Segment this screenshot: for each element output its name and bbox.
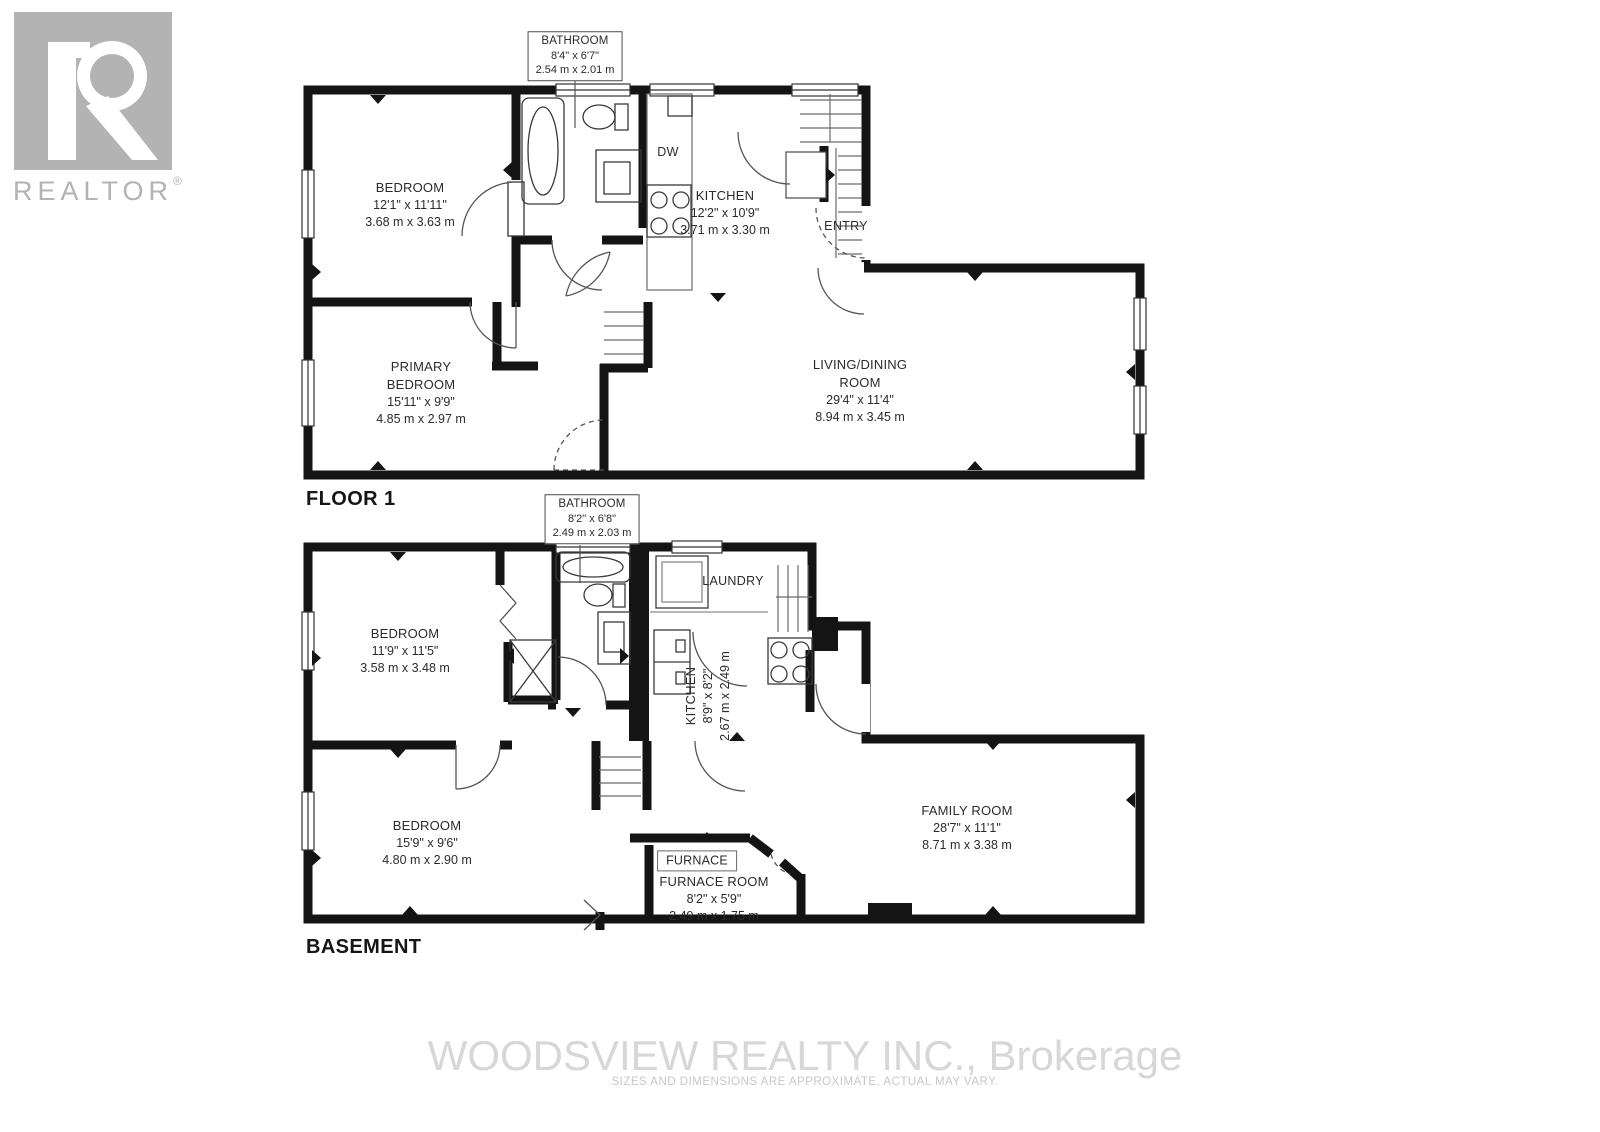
room-dim-metric: 3.68 m x 3.63 m bbox=[365, 214, 455, 231]
room-name: KITCHEN bbox=[680, 187, 770, 205]
room-dim-metric: 4.80 m x 2.90 m bbox=[382, 852, 472, 869]
stove-icon bbox=[768, 638, 812, 684]
room-dim-imperial: 15'9" x 9'6" bbox=[382, 835, 472, 852]
room-name: KITCHEN bbox=[682, 651, 700, 741]
room-dim-imperial: 15'11" x 9'9" bbox=[376, 394, 466, 411]
brokerage-watermark: WOODSVIEW REALTY INC., Brokerage bbox=[428, 1032, 1183, 1080]
room-name: FURNACE bbox=[666, 852, 728, 869]
floor1-bathroom-label: BATHROOM 8'4" x 6'7" 2.54 m x 2.01 m bbox=[528, 31, 623, 81]
basement-bedroom1-label: BEDROOM 11'9" x 11'5" 3.58 m x 3.48 m bbox=[360, 625, 450, 677]
room-dim-imperial: 29'4" x 11'4" bbox=[813, 392, 907, 409]
floor1-title: FLOOR 1 bbox=[306, 488, 395, 511]
room-name: ROOM bbox=[813, 374, 907, 392]
basement-bathroom-label: BATHROOM 8'2" x 6'8" 2.49 m x 2.03 m bbox=[545, 494, 640, 544]
room-dim-imperial: 28'7" x 11'1" bbox=[921, 820, 1012, 837]
basement-furnace-tag: FURNACE bbox=[657, 850, 737, 871]
room-dim-imperial: 12'1" x 11'11" bbox=[365, 197, 455, 214]
room-dim-imperial: 12'2" x 10'9" bbox=[680, 205, 770, 222]
room-name: BEDROOM bbox=[376, 376, 466, 394]
room-dim-metric: 2.67 m x 2.49 m bbox=[717, 651, 734, 741]
room-dim-imperial: 8'2" x 5'9" bbox=[659, 891, 768, 908]
room-dim-metric: 4.85 m x 2.97 m bbox=[376, 411, 466, 428]
disclaimer-text: SIZES AND DIMENSIONS ARE APPROXIMATE, AC… bbox=[611, 1076, 998, 1088]
floor1-primary-bedroom-label: PRIMARY BEDROOM 15'11" x 9'9" 4.85 m x 2… bbox=[376, 358, 466, 428]
floor1-entry-label: ENTRY bbox=[824, 219, 868, 233]
basement-family-room-label: FAMILY ROOM 28'7" x 11'1" 8.71 m x 3.38 … bbox=[921, 802, 1012, 854]
realtor-logo-icon bbox=[14, 12, 172, 170]
room-dim-imperial: 8'9" x 8'2" bbox=[700, 651, 717, 741]
room-name: LIVING/DINING bbox=[813, 356, 907, 374]
bifold-door-icon bbox=[500, 585, 516, 639]
floor1-bedroom-label: BEDROOM 12'1" x 11'11" 3.68 m x 3.63 m bbox=[365, 179, 455, 231]
room-name: BATHROOM bbox=[553, 497, 632, 512]
floor1-dishwasher-label: DW bbox=[657, 145, 678, 159]
room-dim-imperial: 8'2" x 6'8" bbox=[553, 512, 632, 526]
basement-furnace-room-label: FURNACE ROOM 8'2" x 5'9" 2.49 m x 1.75 m bbox=[659, 873, 768, 925]
room-name: PRIMARY bbox=[376, 358, 466, 376]
floorplan-page: REALTOR ® BATHROOM 8'4" x 6'7" 2.54 m x … bbox=[0, 0, 1600, 1132]
room-dim-metric: 2.54 m x 2.01 m bbox=[536, 63, 615, 77]
realtor-logo-wordmark: REALTOR ® bbox=[13, 176, 175, 207]
realtor-logo-text: REALTOR bbox=[13, 176, 173, 207]
room-name: BATHROOM bbox=[536, 34, 615, 49]
room-dim-metric: 3.71 m x 3.30 m bbox=[680, 222, 770, 239]
registered-mark: ® bbox=[173, 174, 182, 188]
floor1-kitchen-label: KITCHEN 12'2" x 10'9" 3.71 m x 3.30 m bbox=[680, 187, 770, 239]
room-dim-metric: 2.49 m x 1.75 m bbox=[659, 908, 768, 925]
room-name: FURNACE ROOM bbox=[659, 873, 768, 891]
basement-bedroom2-label: BEDROOM 15'9" x 9'6" 4.80 m x 2.90 m bbox=[382, 817, 472, 869]
basement-laundry-label: LAUNDRY bbox=[702, 574, 764, 588]
basement-kitchen-label: KITCHEN 8'9" x 8'2" 2.67 m x 2.49 m bbox=[682, 651, 734, 741]
room-name: BEDROOM bbox=[360, 625, 450, 643]
kitchen-sink-icon bbox=[668, 96, 692, 116]
room-dim-metric: 8.71 m x 3.38 m bbox=[921, 837, 1012, 854]
room-dim-imperial: 11'9" x 11'5" bbox=[360, 643, 450, 660]
basement-title: BASEMENT bbox=[306, 936, 421, 959]
room-dim-metric: 2.49 m x 2.03 m bbox=[553, 526, 632, 540]
room-name: BEDROOM bbox=[382, 817, 472, 835]
toilet-icon bbox=[584, 584, 612, 606]
room-dim-metric: 8.94 m x 3.45 m bbox=[813, 409, 907, 426]
room-name: BEDROOM bbox=[365, 179, 455, 197]
floorplan-drawing bbox=[0, 0, 1600, 1132]
toilet-icon bbox=[583, 105, 615, 129]
room-name: FAMILY ROOM bbox=[921, 802, 1012, 820]
room-dim-metric: 3.58 m x 3.48 m bbox=[360, 660, 450, 677]
washer-icon bbox=[656, 556, 708, 608]
room-dim-imperial: 8'4" x 6'7" bbox=[536, 49, 615, 63]
floor1-living-dining-label: LIVING/DINING ROOM 29'4" x 11'4" 8.94 m … bbox=[813, 356, 907, 426]
